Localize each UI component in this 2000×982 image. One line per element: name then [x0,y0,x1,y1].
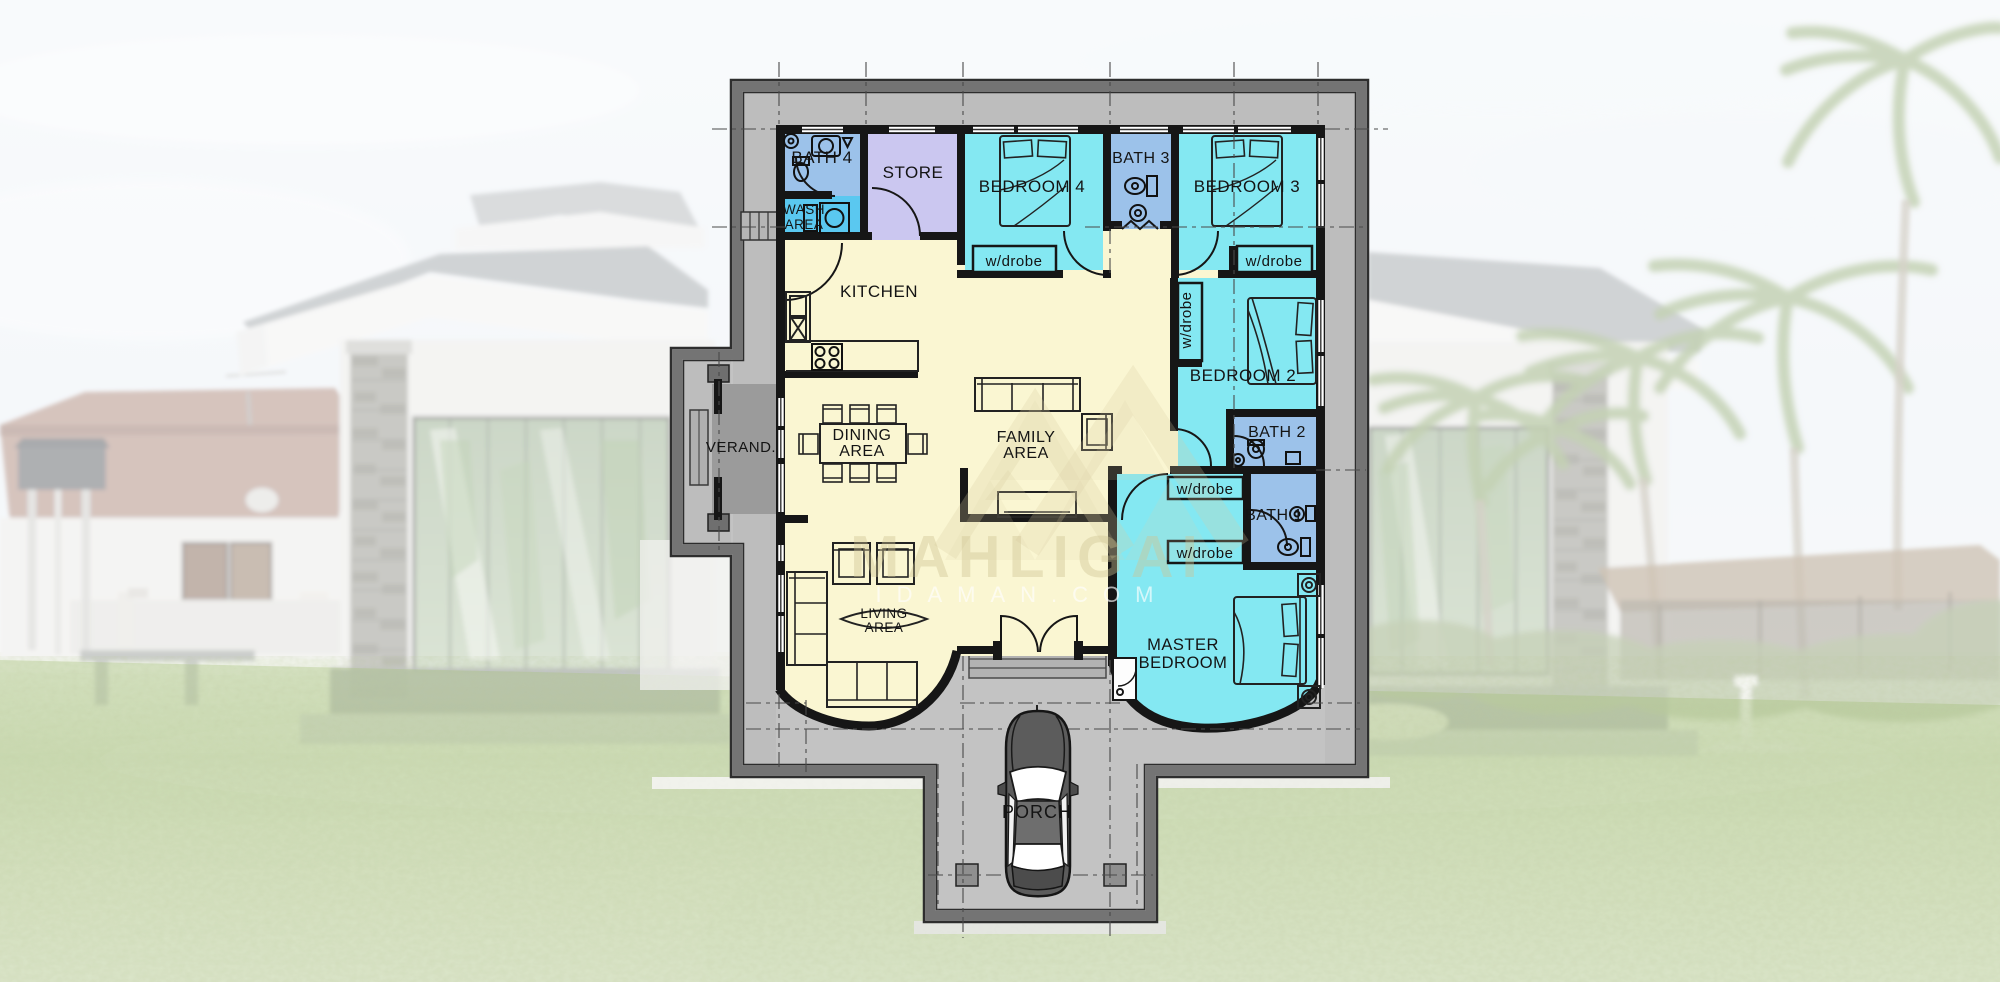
svg-text:BEDROOM: BEDROOM [1139,654,1228,672]
svg-text:PORCH: PORCH [1002,802,1072,822]
svg-text:AREA: AREA [1003,445,1049,462]
svg-text:AREA: AREA [865,620,904,635]
svg-text:AREA: AREA [839,443,885,460]
svg-text:BEDROOM 2: BEDROOM 2 [1190,366,1297,385]
svg-text:AREA: AREA [785,217,824,232]
svg-text:w/drobe: w/drobe [1178,292,1195,350]
svg-text:w/drobe: w/drobe [1176,545,1234,562]
svg-text:MASTER: MASTER [1147,636,1219,654]
svg-text:KITCHEN: KITCHEN [840,282,918,301]
svg-text:BATH 2: BATH 2 [1248,424,1306,441]
svg-text:WASH: WASH [783,202,825,217]
svg-text:VERAND.: VERAND. [706,439,776,456]
svg-text:w/drobe: w/drobe [985,253,1043,270]
svg-text:BEDROOM 3: BEDROOM 3 [1194,177,1301,196]
svg-text:DINING: DINING [833,427,892,444]
svg-text:LIVING: LIVING [860,606,907,621]
svg-text:w/drobe: w/drobe [1176,481,1234,498]
svg-text:IDAMAN.COM: IDAMAN.COM [876,582,1169,607]
svg-text:BEDROOM 4: BEDROOM 4 [979,177,1086,196]
svg-text:FAMILY: FAMILY [997,429,1056,446]
svg-text:STORE: STORE [883,163,944,182]
svg-text:MAHLIGAI: MAHLIGAI [850,524,1206,590]
svg-text:BATH 1: BATH 1 [1245,507,1303,524]
svg-text:w/drobe: w/drobe [1245,253,1303,270]
svg-text:BATH 4: BATH 4 [791,148,852,167]
svg-text:BATH 3: BATH 3 [1112,150,1170,167]
